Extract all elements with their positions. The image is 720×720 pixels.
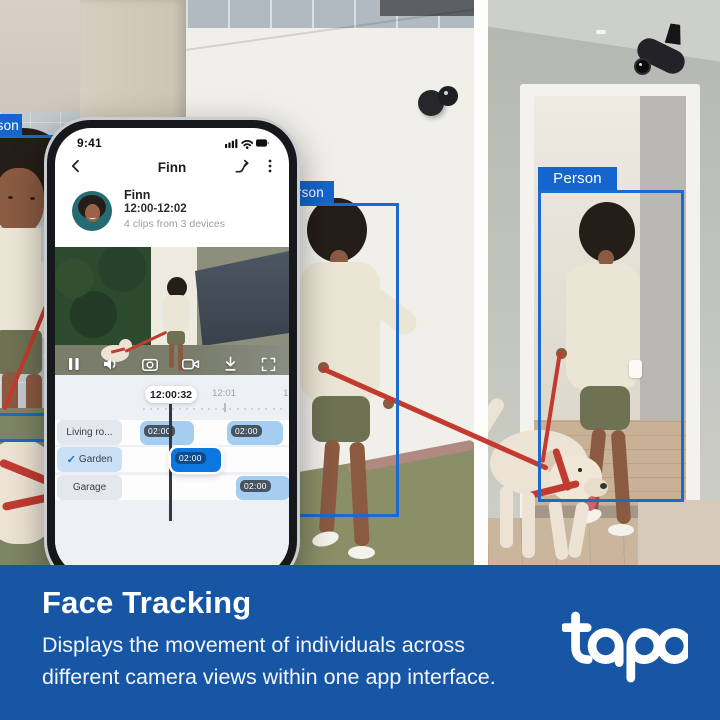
ruler-long-tick: [224, 403, 226, 412]
feature-title: Face Tracking: [42, 585, 251, 621]
ruler-dot: [273, 408, 275, 410]
feature-description-line2: different camera views within one app in…: [42, 665, 496, 689]
room-filter-garage[interactable]: Garage: [57, 475, 122, 500]
room-label: Garden: [79, 454, 112, 465]
clip[interactable]: 02:00: [140, 421, 194, 445]
avatar[interactable]: [72, 191, 112, 231]
feature-description-line1: Displays the movement of individuals acr…: [42, 633, 465, 657]
timeline-panel: 12:00:32 12:0112:02 Living ro...02:0002:…: [55, 375, 289, 565]
person-tag-label: Person: [553, 170, 602, 187]
video-player[interactable]: [55, 247, 289, 375]
app-header: Finn: [55, 152, 289, 182]
ruler-dot: [165, 408, 167, 410]
recessed-light: [596, 30, 606, 34]
wifi-dot: [246, 146, 249, 149]
bullet-camera-lens: [634, 58, 651, 75]
person-middle-shoe: [348, 546, 375, 559]
room-label: Living ro...: [66, 427, 112, 438]
video-garage-door: [195, 247, 289, 347]
person-left-face: [0, 168, 44, 234]
person-detection-tag-left: Person: [0, 114, 22, 137]
roof-band: [380, 0, 474, 16]
ruler-dot: [215, 408, 217, 410]
floor-tile: [638, 500, 720, 565]
page-title: Finn: [55, 160, 289, 175]
cellular-icon: [225, 139, 237, 148]
ruler-dot: [193, 408, 195, 410]
clip-duration-badge: 02:00: [175, 452, 206, 464]
volume-button[interactable]: [103, 357, 119, 371]
pause-button[interactable]: [68, 357, 80, 371]
camera-lens-dot: [639, 63, 642, 66]
ruler-dot: [229, 408, 231, 410]
ruler-dot: [251, 408, 253, 410]
person-left-eye: [30, 197, 35, 200]
timeline-row: Living ro...02:0002:00: [55, 420, 289, 445]
room-filter-garden[interactable]: ✓Garden: [57, 447, 122, 472]
ruler-dot: [186, 408, 188, 410]
face-summary: Finn 12:00-12:02 4 clips from 3 devices: [55, 186, 289, 244]
phone-mockup: 9:41: [44, 117, 300, 565]
snapshot-button[interactable]: [142, 357, 158, 371]
current-time-pill: 12:00:32: [145, 386, 197, 403]
ruler-dot: [265, 408, 267, 410]
feature-description: Displays the movement of individuals acr…: [42, 629, 496, 693]
more-menu-button[interactable]: [259, 155, 281, 177]
timeline-row: Garage02:00: [55, 475, 289, 500]
download-button[interactable]: [223, 356, 238, 372]
ruler-dot: [258, 408, 260, 410]
dog-right-leg: [500, 486, 513, 548]
clip-selected[interactable]: 02:00: [171, 448, 221, 472]
ruler-dot: [280, 408, 282, 410]
dog-right-leg: [522, 492, 535, 558]
ruler-tick-label: 12:02: [283, 388, 289, 399]
status-time: 9:41: [77, 136, 102, 150]
room-label: Garage: [73, 482, 106, 493]
person-tag-label: Person: [0, 118, 19, 133]
clip-duration-badge: 02:00: [231, 425, 262, 437]
ruler-tick-label: 12:01: [212, 388, 236, 399]
video-trees: [55, 247, 151, 351]
check-icon: ✓: [67, 453, 76, 466]
dog-right-tail: [488, 396, 507, 441]
ruler-dot: [143, 408, 145, 410]
camera-lens-dot: [444, 91, 448, 95]
face-name: Finn: [124, 188, 150, 202]
phone-side-button: [41, 226, 44, 262]
status-bar: 9:41: [55, 128, 289, 150]
ruler-dot: [172, 408, 174, 410]
status-icons: [225, 137, 269, 149]
feature-banner: Face Tracking Displays the movement of i…: [0, 565, 720, 720]
avatar-smile: [89, 216, 96, 219]
player-controls: [55, 356, 289, 372]
face-clips-info: 4 clips from 3 devices: [124, 218, 225, 230]
clip-duration-badge: 02:00: [240, 480, 271, 492]
panel-divider: [474, 0, 488, 565]
face-time-range: 12:00-12:02: [124, 203, 187, 215]
battery-icon: [256, 139, 269, 146]
ruler-dot: [237, 408, 239, 410]
switch-route-icon: [234, 158, 251, 175]
camera-collage: Person Person Person 9:41: [0, 0, 720, 565]
face-switch-button[interactable]: [231, 155, 253, 177]
avatar-face: [85, 204, 100, 222]
room-filter-livingro[interactable]: Living ro...: [57, 420, 122, 445]
person-right-shoe: [608, 524, 634, 536]
page: Person Person Person 9:41: [0, 0, 720, 720]
ruler-dot: [150, 408, 152, 410]
ruler-dot: [244, 408, 246, 410]
person-detection-box-right: [538, 190, 684, 502]
video-person-hoodie: [163, 295, 189, 333]
clip[interactable]: 02:00: [227, 421, 283, 445]
kebab-menu-icon: [263, 158, 277, 174]
tapo-logo: [562, 611, 688, 683]
phone-screen: 9:41: [55, 128, 289, 565]
clip[interactable]: 02:00: [236, 476, 289, 500]
ruler-dot: [201, 408, 203, 410]
ceiling: [488, 0, 720, 70]
magnetic-camera-lens: [438, 86, 458, 106]
person-detection-tag-right: Person: [538, 167, 617, 190]
ruler-dot: [208, 408, 210, 410]
ruler-dot: [157, 408, 159, 410]
fullscreen-button[interactable]: [261, 357, 276, 372]
person-left-eye: [8, 196, 13, 199]
wall-top: [0, 0, 80, 112]
video-person-shorts: [167, 331, 185, 345]
timeline-row: ✓Garden02:00: [55, 447, 289, 472]
wifi-icon: [242, 141, 252, 146]
ruler-dot: [179, 408, 181, 410]
record-button[interactable]: [182, 357, 200, 371]
